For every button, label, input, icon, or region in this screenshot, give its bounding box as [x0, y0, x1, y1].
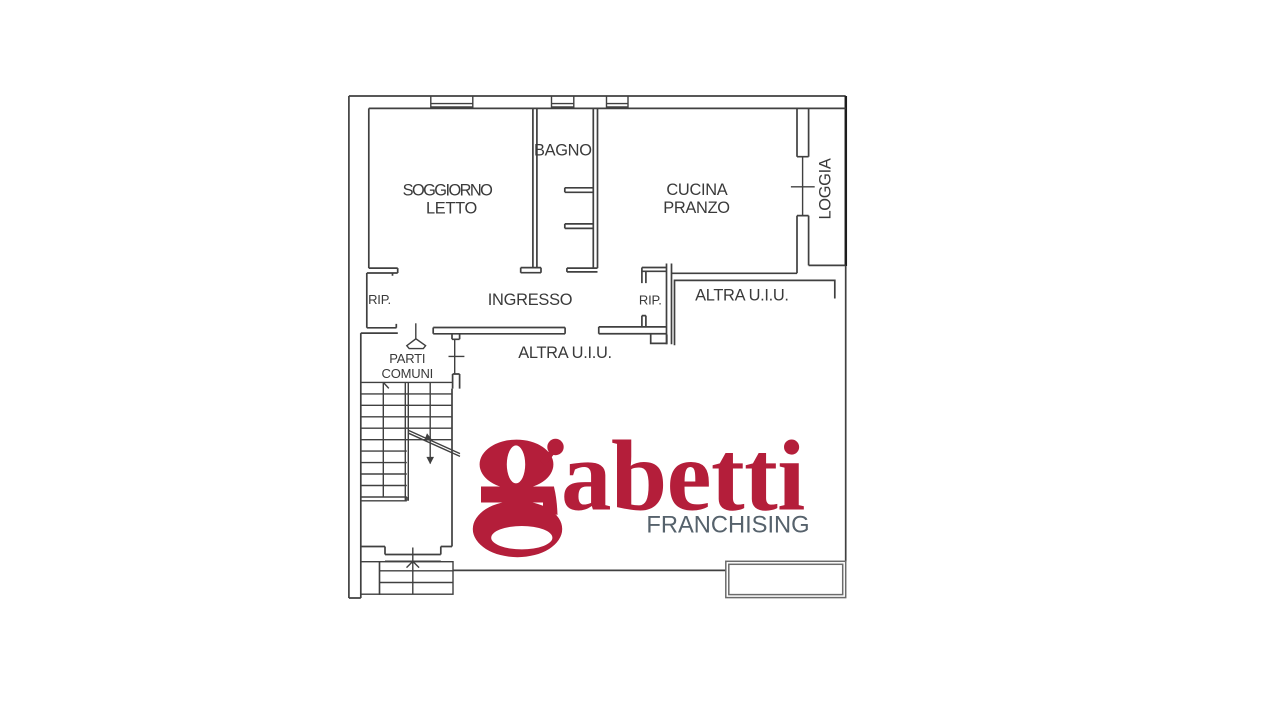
svg-text:COMUNI: COMUNI [382, 366, 434, 381]
svg-text:BAGNO: BAGNO [534, 142, 592, 160]
svg-text:ALTRA U.I.U.: ALTRA U.I.U. [518, 344, 612, 362]
svg-text:SOGGIORNO: SOGGIORNO [403, 182, 493, 200]
svg-text:LOGGIA: LOGGIA [817, 158, 835, 219]
svg-text:CUCINA: CUCINA [666, 181, 727, 199]
svg-text:ALTRA U.I.U.: ALTRA U.I.U. [695, 287, 789, 305]
svg-text:LETTO: LETTO [426, 200, 477, 218]
svg-text:FRANCHISING: FRANCHISING [646, 513, 809, 539]
svg-text:INGRESSO: INGRESSO [488, 291, 573, 309]
svg-text:RIP.: RIP. [639, 292, 662, 307]
svg-text:PARTI: PARTI [389, 351, 425, 366]
svg-text:RIP.: RIP. [368, 292, 391, 307]
svg-text:PRANZO: PRANZO [663, 199, 730, 217]
